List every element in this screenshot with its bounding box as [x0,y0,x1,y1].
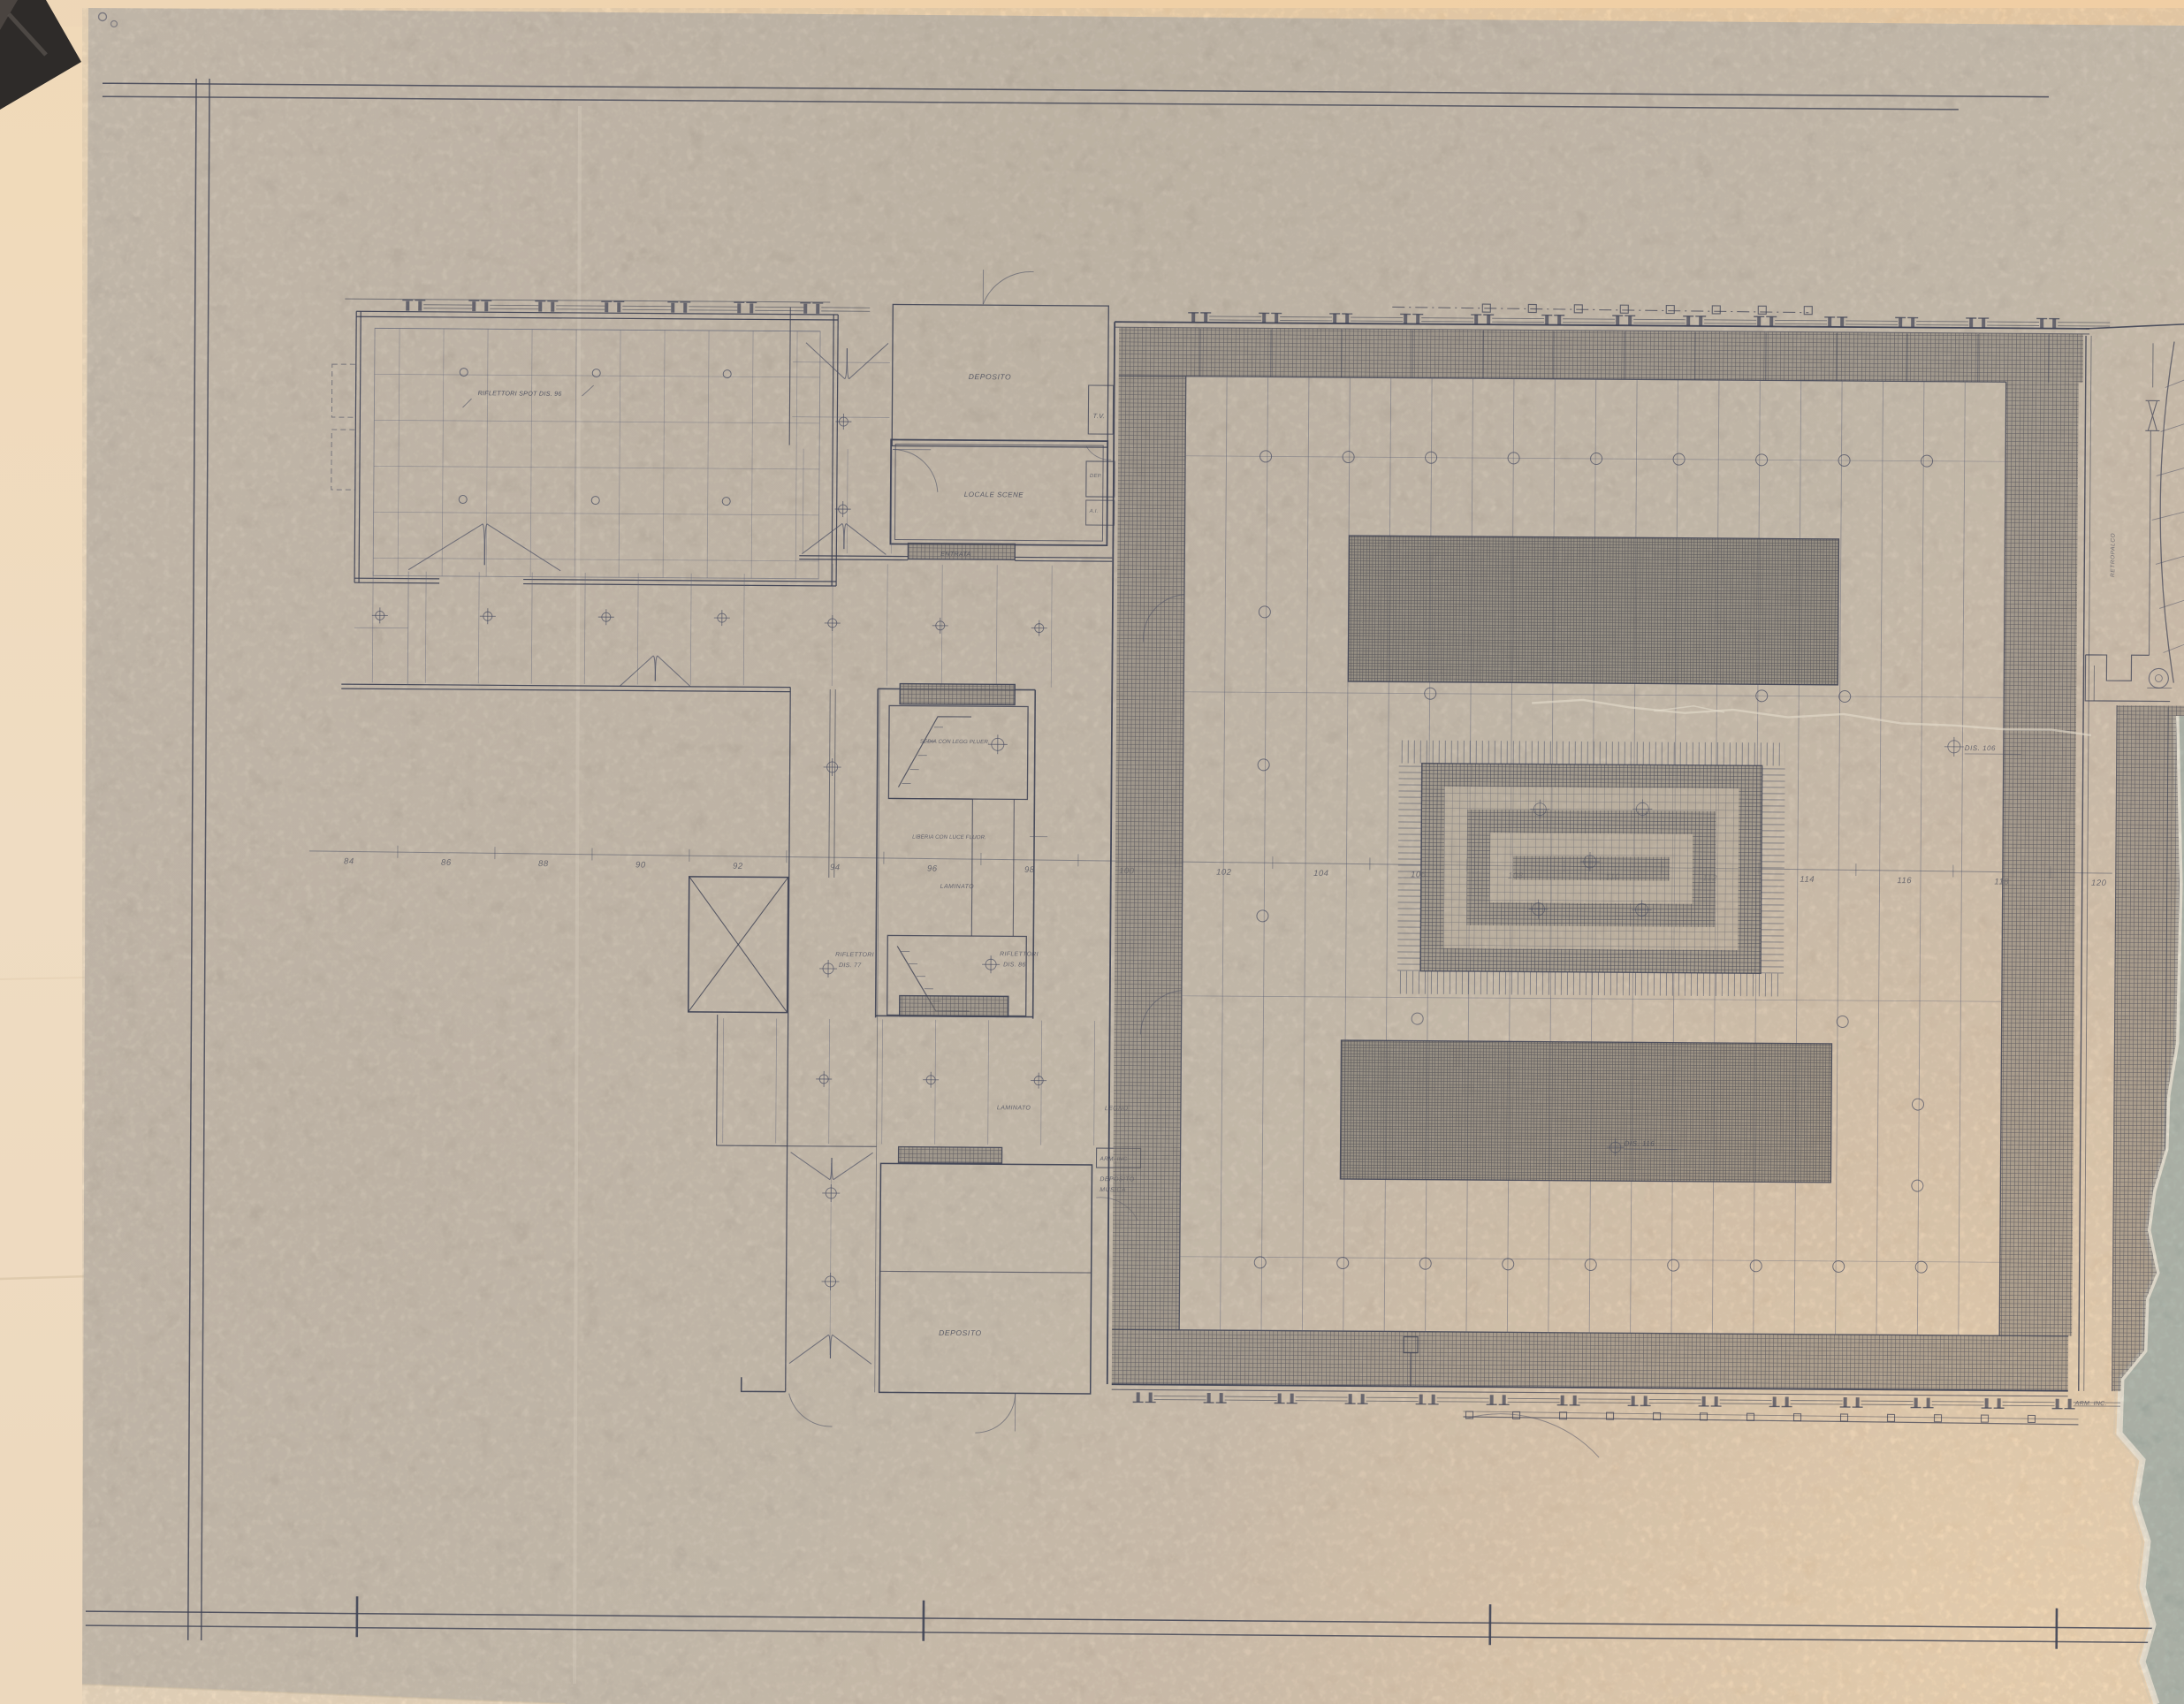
svg-text:RIFLETTORI: RIFLETTORI [1000,951,1039,957]
svg-text:DEPOSITO: DEPOSITO [969,372,1012,381]
svg-text:DEPOSITO: DEPOSITO [939,1328,982,1337]
svg-text:102: 102 [1216,868,1232,878]
svg-text:84: 84 [344,856,354,866]
svg-text:RIFLETTORI SPOT DIS. 96: RIFLETTORI SPOT DIS. 96 [478,389,562,398]
svg-text:DIS. 77: DIS. 77 [839,962,862,969]
svg-text:LOCALE SCENE: LOCALE SCENE [964,491,1024,498]
svg-text:120: 120 [2091,879,2107,888]
svg-text:86: 86 [441,858,452,868]
svg-text:DIS. 116: DIS. 116 [1625,1139,1655,1147]
svg-text:LAMINATO: LAMINATO [997,1105,1031,1111]
svg-text:DEP.: DEP. [1090,474,1102,479]
svg-text:T.V.: T.V. [1093,412,1106,420]
svg-text:96: 96 [927,864,938,874]
svg-text:A.I.: A.I. [1089,509,1099,514]
svg-text:DIS. 106: DIS. 106 [1965,744,1996,752]
svg-text:88: 88 [538,859,549,869]
svg-text:LIBERIA CON LUCE FLUOR.: LIBERIA CON LUCE FLUOR. [912,834,986,841]
svg-text:DIS. 86: DIS. 86 [1003,962,1026,968]
svg-text:RETROPALCO: RETROPALCO [2110,533,2116,577]
svg-text:ARM. INC.: ARM. INC. [2074,1401,2107,1407]
svg-text:114: 114 [1800,875,1815,885]
svg-text:94: 94 [830,863,841,872]
svg-text:ENTRATA: ENTRATA [940,552,970,558]
svg-text:SEDIA CON LEGG PLUER.: SEDIA CON LEGG PLUER. [920,739,990,746]
svg-text:RIFLETTORI: RIFLETTORI [835,952,874,958]
svg-text:116: 116 [1897,876,1912,886]
svg-text:92: 92 [733,862,743,871]
svg-text:LAMINATO: LAMINATO [940,884,975,890]
svg-text:90: 90 [635,860,646,870]
svg-text:104: 104 [1313,869,1328,879]
